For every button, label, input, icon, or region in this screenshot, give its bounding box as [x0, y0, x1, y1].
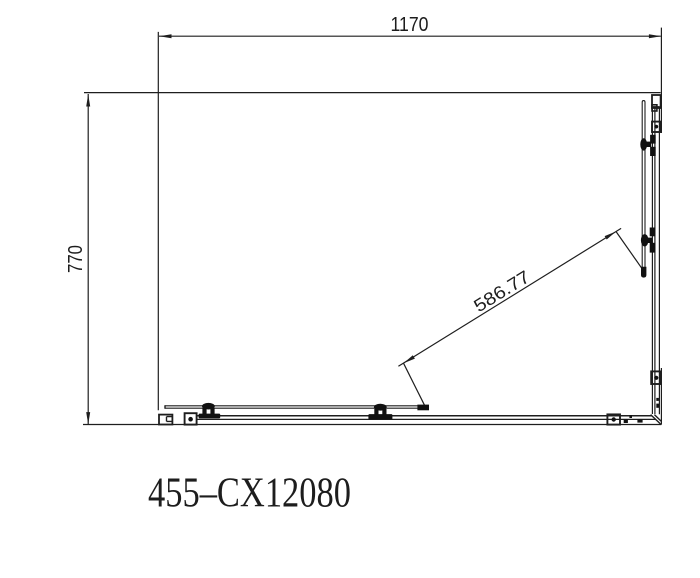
svg-text:586.77: 586.77 [470, 267, 533, 317]
svg-text:770: 770 [65, 245, 87, 273]
svg-text:455–CX12080: 455–CX12080 [148, 471, 351, 517]
svg-text:1170: 1170 [391, 14, 429, 36]
